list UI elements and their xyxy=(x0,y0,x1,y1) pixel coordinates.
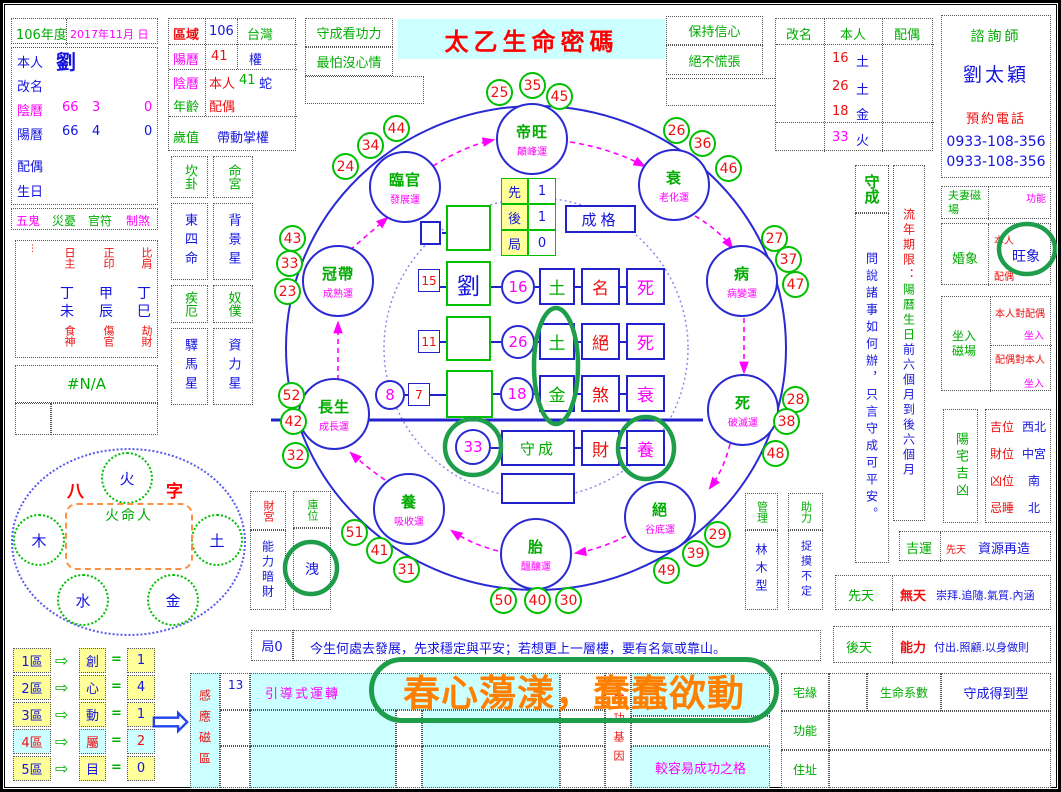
element-circle-fire: 火 xyxy=(101,452,153,504)
couple-field-box: 夫妻磁場 功能 xyxy=(941,186,1051,219)
palace-beijingxing: 背景星 xyxy=(213,203,253,280)
consultant-name: 劉太穎 xyxy=(963,60,1029,87)
storage-value: 洩 xyxy=(305,559,319,579)
cell-text: 死 xyxy=(637,274,654,299)
stage-subtitle: 谷底運 xyxy=(645,521,675,536)
stage-subtitle: 病變運 xyxy=(727,285,757,300)
cell-text: 死 xyxy=(637,329,654,354)
element-tu: 土 xyxy=(856,79,869,98)
element-huo: 火 xyxy=(856,130,869,149)
name-char: 劉 xyxy=(457,267,480,301)
empty-field[interactable] xyxy=(51,403,158,435)
innate-tag: 無天 xyxy=(900,585,926,604)
liunian-seg3: 前六個月到後六個月 xyxy=(902,343,916,478)
stage-name: 病 xyxy=(734,263,750,284)
region-block: 區域 106 台灣 陽曆 41 權 陰曆 年齡 本人 41 蛇 配偶 歲值 帶動… xyxy=(168,18,296,151)
function-label: 功能 xyxy=(781,711,829,750)
mini-label-ju: 局 xyxy=(501,230,528,256)
manage-label: 管理 xyxy=(754,501,770,523)
equals-sign: = xyxy=(111,652,122,667)
element-circle-metal: 金 xyxy=(147,574,199,626)
innate-value: 崇拜.追隨.氣質.內涵 xyxy=(936,587,1035,603)
divider xyxy=(237,19,238,69)
cell-jue: 絕 xyxy=(581,323,620,360)
assist-label: 助力 xyxy=(798,501,814,523)
element-circle-wood: 木 xyxy=(13,514,65,566)
house-k2: 財位 xyxy=(990,445,1014,462)
name-box: 劉 xyxy=(446,261,491,306)
motto-text: 保持信心 xyxy=(688,21,740,40)
stage-subtitle: 成長運 xyxy=(319,418,349,433)
element-jin: 金 xyxy=(856,104,869,123)
equals-sign: = xyxy=(111,760,122,775)
mini-label-xian: 先 xyxy=(501,178,528,204)
value-26: 26 xyxy=(832,79,849,94)
acquired-value: 付出.照顧.以身做則 xyxy=(934,639,1029,655)
assist-value-box: 捉摸不定 xyxy=(788,530,823,610)
ju-label: 局0 xyxy=(261,636,282,655)
phone-2: 0933-108-356 xyxy=(946,154,1045,170)
stage-subtitle: 吸收運 xyxy=(394,513,424,528)
divider xyxy=(988,224,989,286)
zone-arrow-icon: ⇨ xyxy=(55,678,68,697)
year-label: 106年度 xyxy=(16,24,67,43)
divider xyxy=(169,116,297,117)
house-values-box: 吉位西北 財位中宮 凶位南 忌睡北 xyxy=(985,409,1051,523)
motto-right-2: 絕不慌張 xyxy=(666,45,763,75)
index-box-15: 15 xyxy=(418,269,440,292)
bazi-header-1: 日主 xyxy=(61,247,77,269)
index-box-7: 7 xyxy=(408,383,430,406)
sitting-r2-tag: 坐入 xyxy=(1024,375,1044,390)
na-box: #N/A xyxy=(15,365,158,403)
stage-circle-臨官: 臨官發展運 xyxy=(369,151,441,223)
consultant-title: 諮詢師 xyxy=(971,26,1022,46)
cell-cai: 財 xyxy=(581,430,620,466)
house-v4: 北 xyxy=(1028,499,1040,516)
cycle-number-29: 29 xyxy=(704,521,731,548)
solar-age-value: 41 xyxy=(211,49,228,64)
taiyi-life-code-chart: 106年度 2017年11月 日 本人 劉 改名 陰曆 66 3 0 陽曆 66… xyxy=(0,0,1061,792)
cycle-number-38: 38 xyxy=(773,408,800,435)
storage-value-box: 洩 xyxy=(293,528,331,610)
big-arrow-icon: ⇨ xyxy=(151,697,191,745)
luck-label: 吉運 xyxy=(906,538,932,557)
cycle-number-44: 44 xyxy=(383,115,410,142)
empty-field[interactable] xyxy=(15,403,51,435)
nupu-label: 奴僕 xyxy=(224,291,243,317)
mini-k: 後 xyxy=(508,208,521,227)
stage-subtitle: 破滅運 xyxy=(728,414,758,429)
spouse-tag: 配偶 xyxy=(209,96,235,115)
zone-value: 0 xyxy=(127,756,155,781)
number-circle-26: 26 xyxy=(501,325,535,359)
sitting-r1-tag: 坐入 xyxy=(1024,327,1044,342)
element-metal: 金 xyxy=(165,590,180,611)
stage-subtitle: 顛峰運 xyxy=(517,143,547,158)
stage-subtitle: 成熟運 xyxy=(323,285,353,300)
ju-text: 今生何處去發展，先求穩定與平安；若想更上一層樓，要有名氣或靠山。 xyxy=(310,638,726,657)
assist-label-box: 助力 xyxy=(788,493,823,530)
mini-v: 1 xyxy=(538,184,546,199)
life-type-text: 守成得到型 xyxy=(963,683,1028,702)
palace-dongsiming: 東四命 xyxy=(171,203,208,280)
equals-sign: = xyxy=(111,679,122,694)
value-33: 33 xyxy=(832,130,849,145)
cell-text: 金 xyxy=(549,381,566,406)
zone-label: 3區 xyxy=(13,702,51,727)
cell-shoucheng: 守成 xyxy=(501,430,575,466)
marriage-self: 本人 xyxy=(994,232,1014,247)
motto-right-1: 保持信心 xyxy=(666,16,763,45)
stage-name: 衰 xyxy=(666,167,682,188)
marriage-box: 婚象 本人 旺象 配偶 xyxy=(941,223,1051,285)
bazi-stem-1: 丁 xyxy=(60,283,74,303)
cell-text: 煞 xyxy=(592,381,609,406)
empty-field[interactable] xyxy=(422,746,560,788)
divider xyxy=(892,627,893,664)
cycle-number-42: 42 xyxy=(280,408,307,435)
house-k4: 忌睡 xyxy=(990,499,1014,516)
acquired-tag: 能力 xyxy=(900,637,926,656)
divider xyxy=(205,19,206,116)
empty-field[interactable] xyxy=(829,750,1051,788)
storage-label: 庫位 xyxy=(304,499,320,521)
region-code: 106 xyxy=(209,24,234,39)
cycle-number-33: 33 xyxy=(276,250,303,277)
cell-sha: 煞 xyxy=(581,375,620,412)
zone-char: 創 xyxy=(79,648,106,673)
palace-nupu: 奴僕 xyxy=(213,285,253,323)
curses-row: 五鬼 災憂 官符 制煞 xyxy=(11,208,158,230)
annotation-text: 春心蕩漾，蠢蠢欲動 xyxy=(403,663,745,717)
lunar-v2: 3 xyxy=(92,100,100,115)
cycle-number-43: 43 xyxy=(279,225,306,252)
bazi-god-2: 傷官 xyxy=(100,325,116,347)
manage-value-box: 林木型 xyxy=(745,530,778,610)
cycle-number-49: 49 xyxy=(653,557,680,584)
cycle-number-41: 41 xyxy=(366,537,393,564)
empty-field[interactable] xyxy=(396,746,422,788)
empty-field[interactable] xyxy=(420,221,441,245)
stage-name: 冠帶 xyxy=(322,263,354,284)
self-header: 本人 xyxy=(840,24,866,43)
curse-wugui: 五鬼 xyxy=(16,212,40,229)
empty-field[interactable] xyxy=(250,710,396,746)
yimaxing-label: 驛馬星 xyxy=(180,338,199,395)
bazi-table: ⋮ 日主 正印 比肩 丁 甲 丁 未 辰 巳 食神 傷官 劫財 xyxy=(15,240,158,358)
stage-circle-絕: 絕谷底運 xyxy=(624,481,696,553)
divider xyxy=(169,69,297,70)
cycle-number-39: 39 xyxy=(682,540,709,567)
lunar-v3: 0 xyxy=(144,100,152,115)
stage-circle-病: 病病變運 xyxy=(706,245,778,317)
spouse-label: 配偶 xyxy=(17,156,43,175)
zone-label: 1區 xyxy=(13,648,51,673)
number-circle-8: 8 xyxy=(375,380,405,410)
cycle-number-48: 48 xyxy=(762,440,789,467)
stage-name: 死 xyxy=(735,392,751,413)
mini-v: 0 xyxy=(538,236,546,251)
index-box-11: 11 xyxy=(418,330,440,353)
solar-v3: 0 xyxy=(144,124,152,139)
empty-field[interactable] xyxy=(666,78,783,106)
curse-guanfu: 官符 xyxy=(88,212,112,229)
region-label: 區域 xyxy=(173,24,199,43)
couple-tag: 功能 xyxy=(1026,190,1046,205)
self-name: 劉 xyxy=(56,46,76,75)
ability-label: 能力暗財 xyxy=(260,540,277,600)
shoucheng-title: 守成 xyxy=(862,174,883,204)
wealth-palace-box: 財宮 xyxy=(250,491,286,530)
region-name: 台灣 xyxy=(247,24,273,43)
number-circle-33: 33 xyxy=(455,429,491,465)
life-coefficient-text: 生命系數 xyxy=(880,684,928,701)
liunian-seg2: 陽曆生日 xyxy=(902,283,916,343)
cycle-number-23: 23 xyxy=(274,278,301,305)
year-value-label: 歲值 xyxy=(173,127,199,146)
luck-value: 資源再造 xyxy=(978,538,1030,557)
zone-arrow-icon: ⇨ xyxy=(55,705,68,724)
value-16: 16 xyxy=(832,51,849,66)
lunar-age-label: 陰曆 xyxy=(173,73,199,92)
dongsiming-label: 東四命 xyxy=(180,213,199,270)
cell-stage: 死 xyxy=(626,268,665,305)
ability-box: 能力暗財 xyxy=(250,530,286,610)
circle-value: 33 xyxy=(463,438,482,456)
mini-k: 先 xyxy=(508,182,521,201)
house-label: 陽宅吉凶 xyxy=(951,432,970,500)
liunian-box: 流年期限：陽曆生日前六個月到後六個月 xyxy=(893,165,925,521)
cell-stage: 死 xyxy=(626,323,665,360)
house-v3: 南 xyxy=(1028,472,1040,489)
cell-fame: 名 xyxy=(581,268,620,305)
element-fire: 火 xyxy=(119,468,134,489)
cell-yang: 養 xyxy=(626,430,665,466)
divider xyxy=(824,19,825,152)
element-wood: 木 xyxy=(31,530,46,551)
address-text: 住址 xyxy=(793,761,817,778)
phone-label: 預約電話 xyxy=(966,108,1026,127)
sitting-r2: 配偶對本人 xyxy=(995,351,1045,366)
stage-name: 胎 xyxy=(528,536,544,557)
cell-text: 養 xyxy=(637,436,654,461)
empty-field[interactable] xyxy=(220,746,250,788)
cell-text: 財 xyxy=(592,436,609,461)
sitting-r1: 本人對配偶 xyxy=(995,305,1045,320)
age-number: 41 xyxy=(239,73,256,88)
side-marks: ⋮ xyxy=(28,245,37,254)
motto-left-1: 守成看功力 xyxy=(305,18,393,47)
shoucheng-body: 問說諸事如何辦，只言守成可平安。 xyxy=(864,252,881,524)
function-text: 功能 xyxy=(793,722,817,739)
self-label: 本人 xyxy=(17,52,43,71)
destiny-box: 火命人 xyxy=(65,503,193,570)
motto-text: 最怕沒心情 xyxy=(316,52,381,71)
page-title: 太乙生命密碼 xyxy=(398,19,665,59)
divider xyxy=(892,576,893,611)
zone-char: 目 xyxy=(79,756,106,781)
storage-label-box: 庫位 xyxy=(293,491,331,528)
home-affinity-label: 宅緣 xyxy=(781,673,829,711)
cell-text: 土 xyxy=(549,329,566,354)
element-tu: 土 xyxy=(856,51,869,70)
solar-v1: 66 xyxy=(62,124,79,139)
cycle-number-45: 45 xyxy=(546,83,573,110)
cycle-number-46: 46 xyxy=(715,155,742,182)
wealth-palace-label: 財宮 xyxy=(260,500,276,522)
sitting-box: 坐入磁場 本人對配偶 坐入 配偶對本人 坐入 xyxy=(941,296,1051,391)
empty-field[interactable] xyxy=(250,746,396,788)
index-value: 11 xyxy=(421,335,436,349)
induction-header-box: 感應磁區 xyxy=(190,673,220,788)
induction-num-box: 13 xyxy=(220,673,250,710)
element-circle-water: 水 xyxy=(57,574,109,626)
bazi-char-2: 字 xyxy=(166,477,183,502)
zone-char: 動 xyxy=(79,702,106,727)
stage-subtitle: 醞釀運 xyxy=(521,558,551,573)
index-value: 7 xyxy=(415,388,423,402)
empty-field[interactable] xyxy=(220,710,250,746)
cell-text: 土 xyxy=(549,274,566,299)
mini-k: 局 xyxy=(508,234,521,253)
divider xyxy=(66,19,67,45)
rename-label: 改名 xyxy=(17,76,43,95)
consultant-card: 諮詢師 劉太穎 預約電話 0933-108-356 0933-108-356 xyxy=(941,15,1051,178)
house-label-box: 陽宅吉凶 xyxy=(943,409,978,523)
motto-left-2: 最怕沒心情 xyxy=(305,47,393,76)
zone-char: 屬 xyxy=(79,729,106,754)
success-type-box: 較容易成功之格 xyxy=(631,746,770,788)
motto-text: 絕不慌張 xyxy=(688,51,740,70)
induction-header: 感應磁區 xyxy=(197,689,214,773)
spouse-header: 配偶 xyxy=(894,24,920,43)
rename-header: 改名 xyxy=(786,24,812,43)
lunar-v1: 66 xyxy=(62,100,79,115)
shoucheng-title-box: 守成 xyxy=(855,165,889,213)
life-coefficient-label: 生命系數 xyxy=(867,673,941,711)
induction-num: 13 xyxy=(228,678,243,692)
bazi-branch-2: 辰 xyxy=(99,301,113,321)
empty-field[interactable] xyxy=(446,205,491,251)
zone-arrow-icon: ⇨ xyxy=(55,732,68,751)
cell-text: 名 xyxy=(592,274,609,299)
cycle-number-36: 36 xyxy=(689,130,716,157)
empty-field[interactable] xyxy=(829,711,1051,750)
palace-zilixing: 資力星 xyxy=(213,328,253,405)
home-affinity-text: 宅緣 xyxy=(793,684,817,701)
luck-box: 吉運 先天 資源再造 xyxy=(899,531,1051,561)
grade-box: 成格 xyxy=(565,205,636,233)
curse-zaiyou: 災憂 xyxy=(52,212,76,229)
acquired-label: 後天 xyxy=(846,637,872,656)
bazi-branch-3: 巳 xyxy=(137,301,151,321)
cycle-number-32: 32 xyxy=(282,442,309,469)
house-k1: 吉位 xyxy=(990,418,1014,435)
stage-circle-帝旺: 帝旺顛峰運 xyxy=(496,103,568,175)
cycle-number-25: 25 xyxy=(486,79,513,106)
mini-value-xian: 1 xyxy=(528,178,556,204)
empty-field[interactable] xyxy=(829,673,867,711)
cycle-number-47: 47 xyxy=(782,271,809,298)
curse-zhisha: 制煞 xyxy=(126,212,150,229)
manage-label-box: 管理 xyxy=(745,493,778,530)
empty-field[interactable] xyxy=(446,316,491,361)
mini-v: 1 xyxy=(538,210,546,225)
destiny-type: 火命人 xyxy=(105,508,153,524)
stage-name: 臨官 xyxy=(389,169,421,190)
page-title-text: 太乙生命密碼 xyxy=(445,22,619,57)
stage-name: 長生 xyxy=(318,396,350,417)
jie-label: 疾厄 xyxy=(180,291,199,317)
divider xyxy=(776,44,934,45)
zodiac: 蛇 xyxy=(259,73,272,92)
divider xyxy=(169,44,297,45)
mini-value-ju: 0 xyxy=(528,230,556,256)
address-label: 住址 xyxy=(781,750,829,788)
cycle-number-35: 35 xyxy=(519,72,546,99)
bazi-header-2: 正印 xyxy=(100,247,116,269)
cycle-number-26: 26 xyxy=(663,117,690,144)
empty-field[interactable] xyxy=(446,370,493,418)
element-earth: 土 xyxy=(209,530,224,551)
stage-subtitle: 老化運 xyxy=(659,189,689,204)
value-18: 18 xyxy=(832,104,849,119)
divider xyxy=(882,19,883,152)
cycle-number-50: 50 xyxy=(490,587,517,614)
stage-circle-死: 死破滅運 xyxy=(707,374,779,446)
stage-circle-養: 養吸收運 xyxy=(373,473,445,545)
stage-name: 養 xyxy=(401,491,417,512)
birthday-label: 生日 xyxy=(17,181,43,200)
phone-1: 0933-108-356 xyxy=(946,134,1045,150)
grade-text: 成格 xyxy=(581,209,619,230)
cycle-number-52: 52 xyxy=(278,382,305,409)
divider xyxy=(776,122,934,123)
zilixing-label: 資力星 xyxy=(224,338,243,395)
number-circle-18: 18 xyxy=(500,377,534,411)
zone-char: 心 xyxy=(79,675,106,700)
person-box: 本人 劉 改名 陰曆 66 3 0 陽曆 66 4 0 配偶 生日 xyxy=(11,47,158,205)
innate-label: 先天 xyxy=(848,585,874,604)
element-water: 水 xyxy=(75,590,90,611)
marriage-value: 旺象 xyxy=(1012,246,1040,266)
cell-text: 守成 xyxy=(520,438,556,459)
year-value-text: 帶動掌權 xyxy=(217,127,269,146)
motto-text: 守成看功力 xyxy=(316,23,381,42)
cell-element: 土 xyxy=(539,323,575,360)
cycle-number-51: 51 xyxy=(341,519,368,546)
zone-label: 4區 xyxy=(13,729,51,754)
palace-jie: 疾厄 xyxy=(171,285,208,323)
cell-text: 衰 xyxy=(637,381,654,406)
empty-field[interactable] xyxy=(501,473,575,504)
mini-value-hou: 1 xyxy=(528,204,556,230)
date-value: 2017年11月 日 xyxy=(70,26,149,42)
stage-subtitle: 發展運 xyxy=(390,191,420,206)
cell-stage: 衰 xyxy=(626,375,665,412)
beijingxing-label: 背景星 xyxy=(224,213,243,270)
house-v1: 西北 xyxy=(1022,418,1046,435)
lunar-label: 陰曆 xyxy=(17,100,43,119)
zone-label: 5區 xyxy=(13,756,51,781)
empty-field[interactable] xyxy=(560,746,605,788)
couple-label: 夫妻磁場 xyxy=(948,189,984,217)
empty-field[interactable] xyxy=(305,76,424,104)
house-k3: 凶位 xyxy=(990,472,1014,489)
solar-label: 陽曆 xyxy=(17,124,43,143)
circle-value: 16 xyxy=(508,278,527,296)
